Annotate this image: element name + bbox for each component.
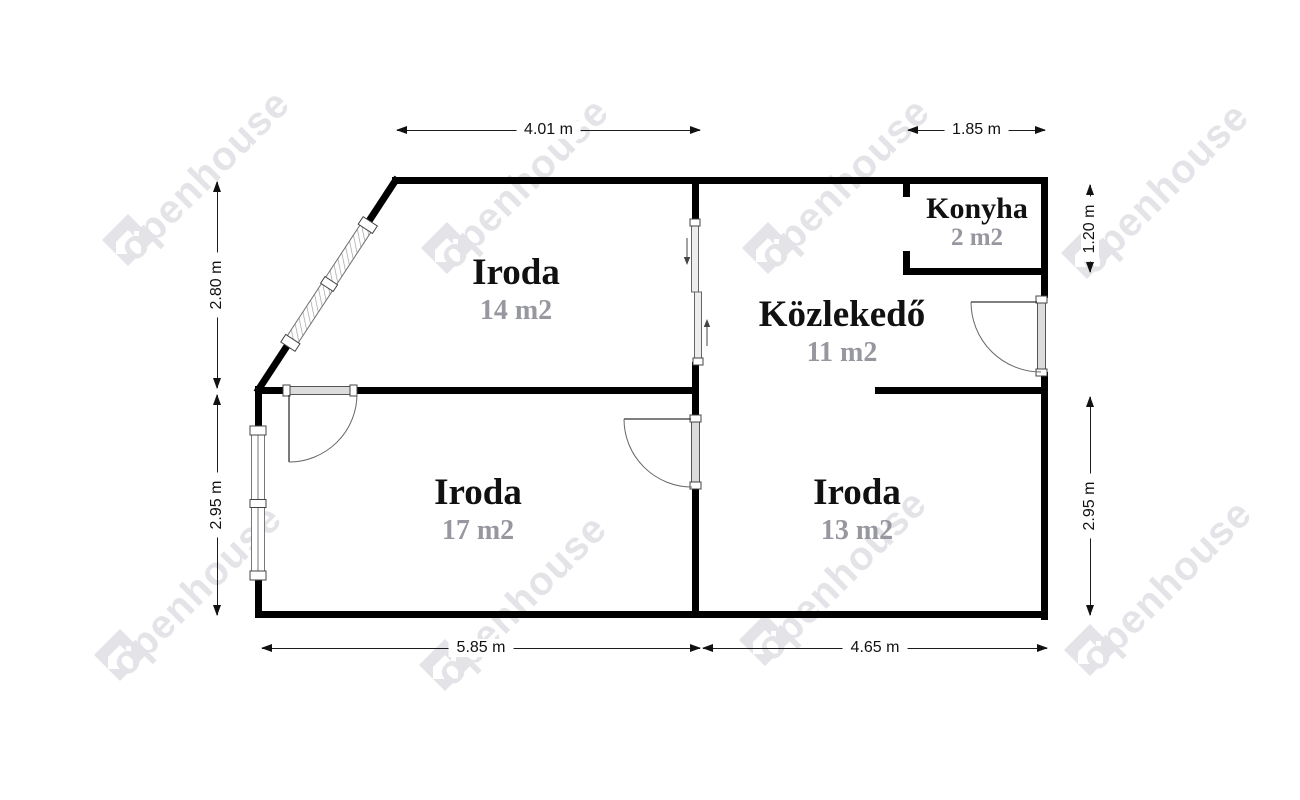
wall-right-lower <box>1041 372 1048 620</box>
room-label-iroda-14: Iroda 14 m2 <box>472 254 560 325</box>
dimension-right-lower: 2.95 m <box>1090 397 1091 615</box>
room-area: 13 m2 <box>813 516 901 545</box>
floorplan-drawing <box>0 0 1300 800</box>
room-name: Iroda <box>813 474 901 513</box>
wall-right-upper <box>1041 177 1048 298</box>
door-swing-arc <box>289 394 357 462</box>
room-area: 14 m2 <box>472 296 560 325</box>
wall-kitchen-left-stub <box>903 177 910 197</box>
dimension-value: 4.01 m <box>516 121 581 139</box>
dimension-left-lower: 2.95 m <box>217 395 218 615</box>
room-area: 17 m2 <box>434 516 522 545</box>
wall-center-seg3 <box>692 487 699 611</box>
dimension-value: 1.20 m <box>1081 196 1099 261</box>
dimension-left-upper: 2.80 m <box>217 182 218 388</box>
slide-direction-up-arrow <box>704 319 710 346</box>
sliding-door-iroda14-kozlekedo <box>684 219 710 365</box>
wall-bottom <box>255 611 1048 618</box>
dimension-value: 4.65 m <box>843 639 908 657</box>
door-iroda14-iroda17 <box>283 385 357 462</box>
room-label-iroda-17: Iroda 17 m2 <box>434 474 522 545</box>
room-area: 11 m2 <box>759 338 925 367</box>
room-label-iroda-13: Iroda 13 m2 <box>813 474 901 545</box>
wall-mid-h-seg3 <box>875 387 1041 394</box>
wall-left-lower <box>255 578 262 618</box>
window-diagonal-wall <box>281 217 378 352</box>
wall-kitchen-bottom <box>903 268 1045 275</box>
room-name: Közlekedő <box>759 296 925 335</box>
door-swing-arc <box>624 419 692 487</box>
floorplan-image: openhouse openhouse openhouse openhouse … <box>0 0 1300 800</box>
room-label-kozlekedo: Közlekedő 11 m2 <box>759 296 925 367</box>
room-label-konyha: Konyha 2 m2 <box>926 193 1028 251</box>
dimension-value: 5.85 m <box>449 639 514 657</box>
wall-top <box>392 177 1048 184</box>
room-name: Konyha <box>926 193 1028 225</box>
dimension-value: 2.95 m <box>208 473 226 538</box>
door-right-wall <box>971 296 1047 376</box>
dimension-top-right: 1.85 m <box>908 130 1045 131</box>
dimension-bottom-right: 4.65 m <box>703 648 1047 649</box>
door-swing-arc <box>971 302 1041 372</box>
dimension-value: 2.95 m <box>1081 474 1099 539</box>
room-name: Iroda <box>434 474 522 513</box>
window-left-wall <box>250 426 266 580</box>
room-name: Iroda <box>472 254 560 293</box>
slide-direction-down-arrow <box>684 238 690 265</box>
dimension-value: 1.85 m <box>944 121 1009 139</box>
dimension-top-left: 4.01 m <box>397 130 700 131</box>
wall-center-seg1 <box>692 177 699 222</box>
dimension-value: 2.80 m <box>208 253 226 318</box>
wall-mid-h-seg2 <box>355 387 699 394</box>
door-iroda17-iroda13 <box>624 415 701 489</box>
dimension-bottom-left: 5.85 m <box>262 648 700 649</box>
dimension-right-upper: 1.20 m <box>1090 185 1091 272</box>
room-area: 2 m2 <box>926 225 1028 251</box>
